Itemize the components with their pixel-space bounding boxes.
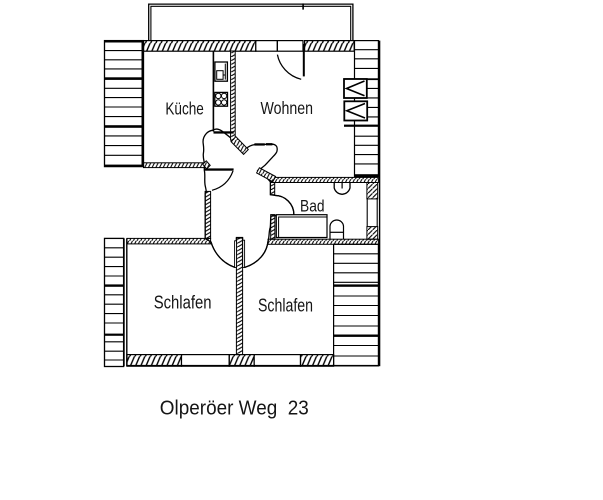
svg-text:Schlafen: Schlafen [154, 292, 212, 312]
svg-text:Schlafen: Schlafen [258, 296, 313, 316]
svg-text:Wohnen: Wohnen [261, 98, 314, 118]
svg-text:Küche: Küche [165, 98, 204, 118]
svg-text:Bad: Bad [300, 197, 325, 215]
svg-text:Olperöer Weg 23: Olperöer Weg 23 [160, 397, 309, 420]
